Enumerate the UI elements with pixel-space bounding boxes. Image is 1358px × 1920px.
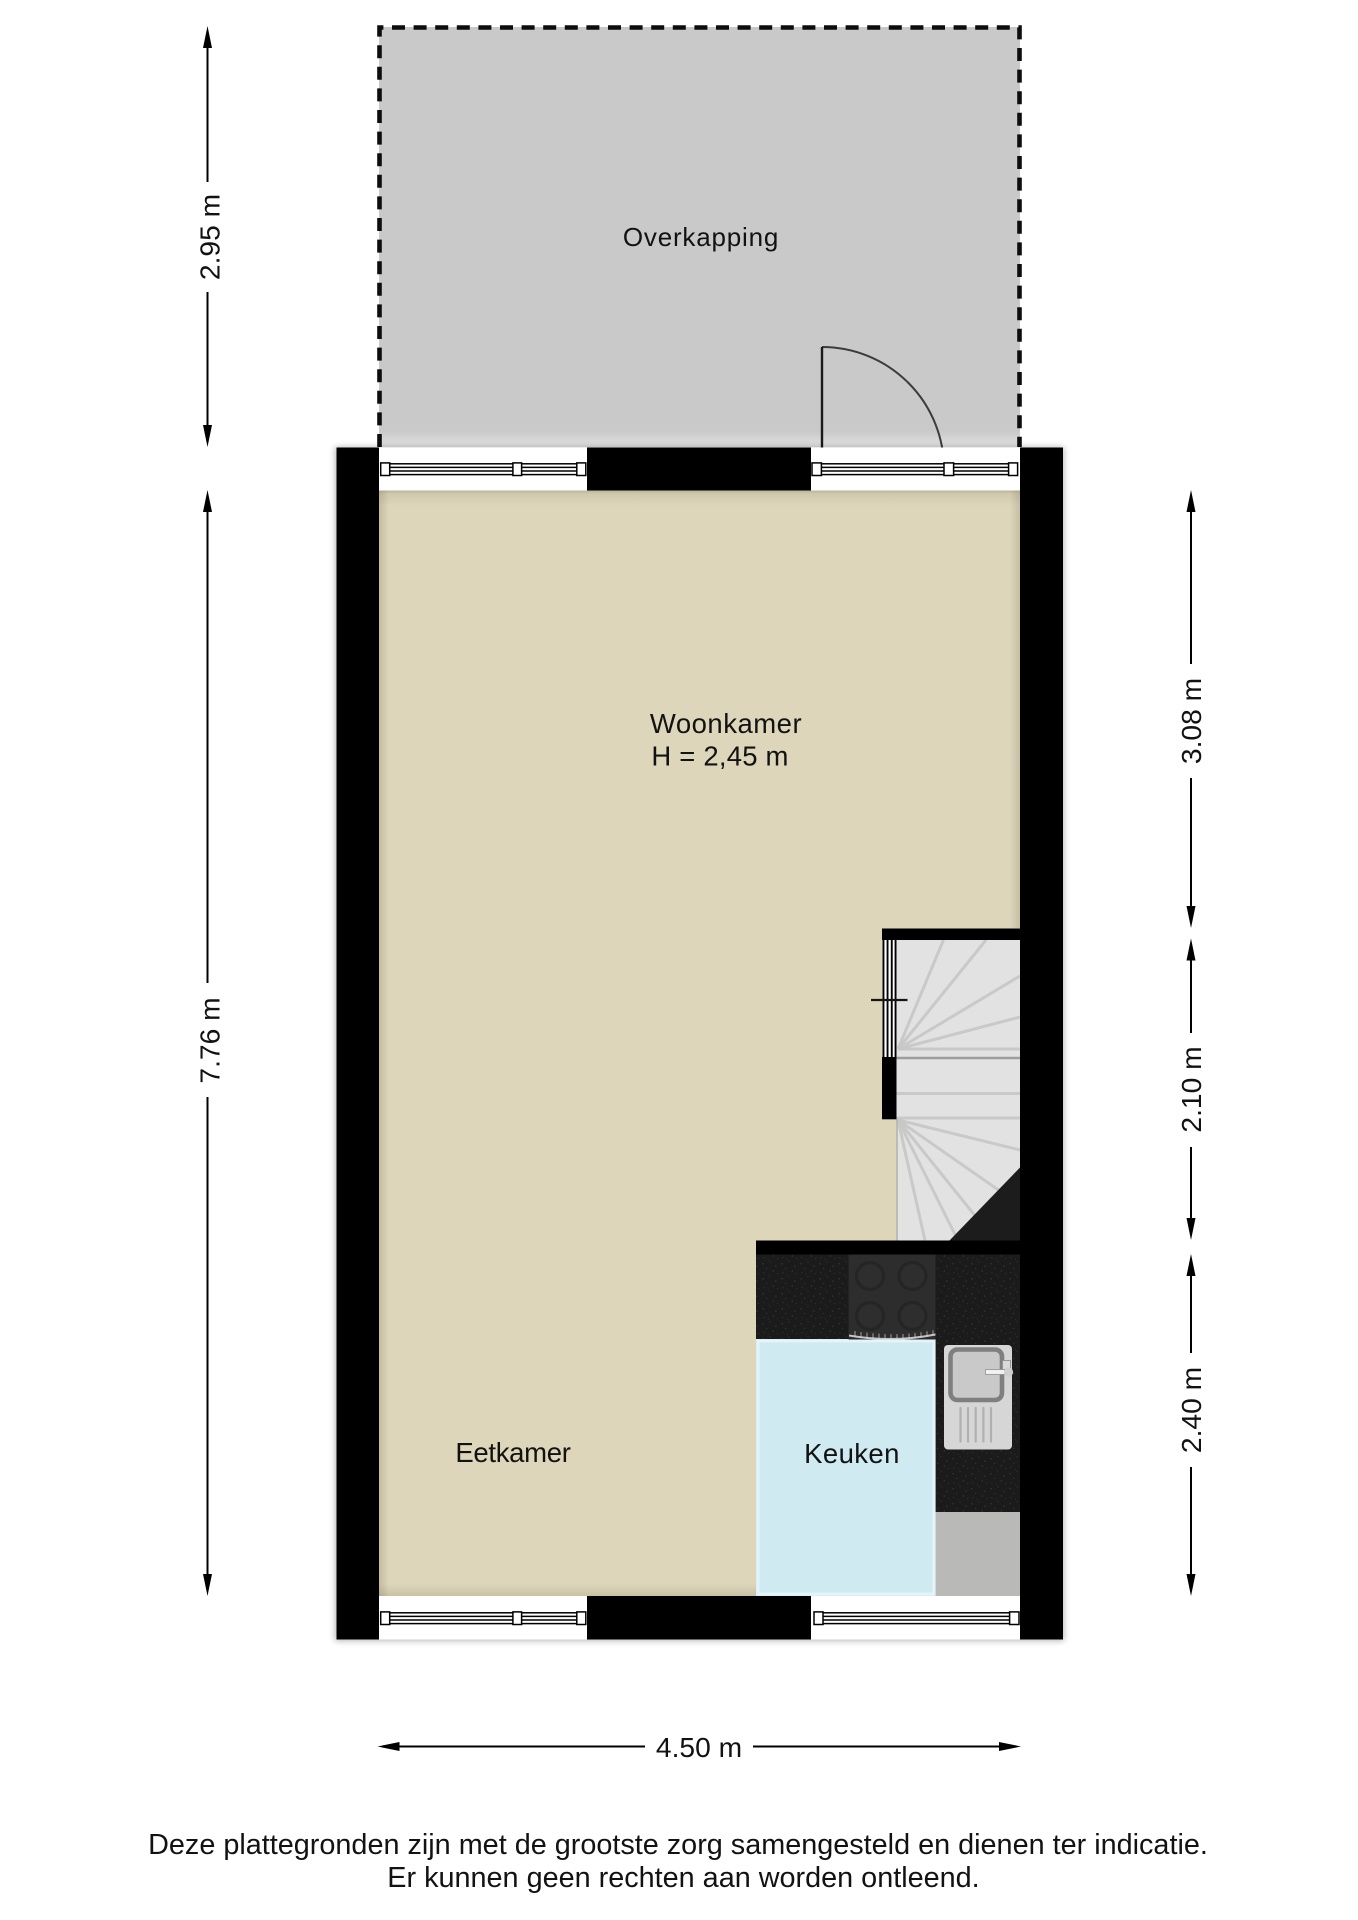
svg-text:4.50 m: 4.50 m [656,1731,742,1763]
svg-text:Er kunnen geen rechten aan wor: Er kunnen geen rechten aan worden ontlee… [387,1862,979,1894]
svg-text:3.08 m: 3.08 m [1175,678,1207,764]
svg-text:Deze plattegronden zijn met de: Deze plattegronden zijn met de grootste … [148,1829,1208,1861]
svg-text:7.76 m: 7.76 m [194,997,226,1083]
svg-text:H = 2,45 m: H = 2,45 m [651,741,788,772]
svg-text:Overkapping: Overkapping [623,222,779,252]
svg-text:2.10 m: 2.10 m [1175,1046,1207,1132]
svg-text:2.40 m: 2.40 m [1175,1367,1207,1453]
svg-text:Keuken: Keuken [804,1438,900,1469]
svg-text:Woonkamer: Woonkamer [650,708,802,739]
svg-text:Eetkamer: Eetkamer [455,1437,570,1468]
svg-text:2.95 m: 2.95 m [194,194,226,280]
